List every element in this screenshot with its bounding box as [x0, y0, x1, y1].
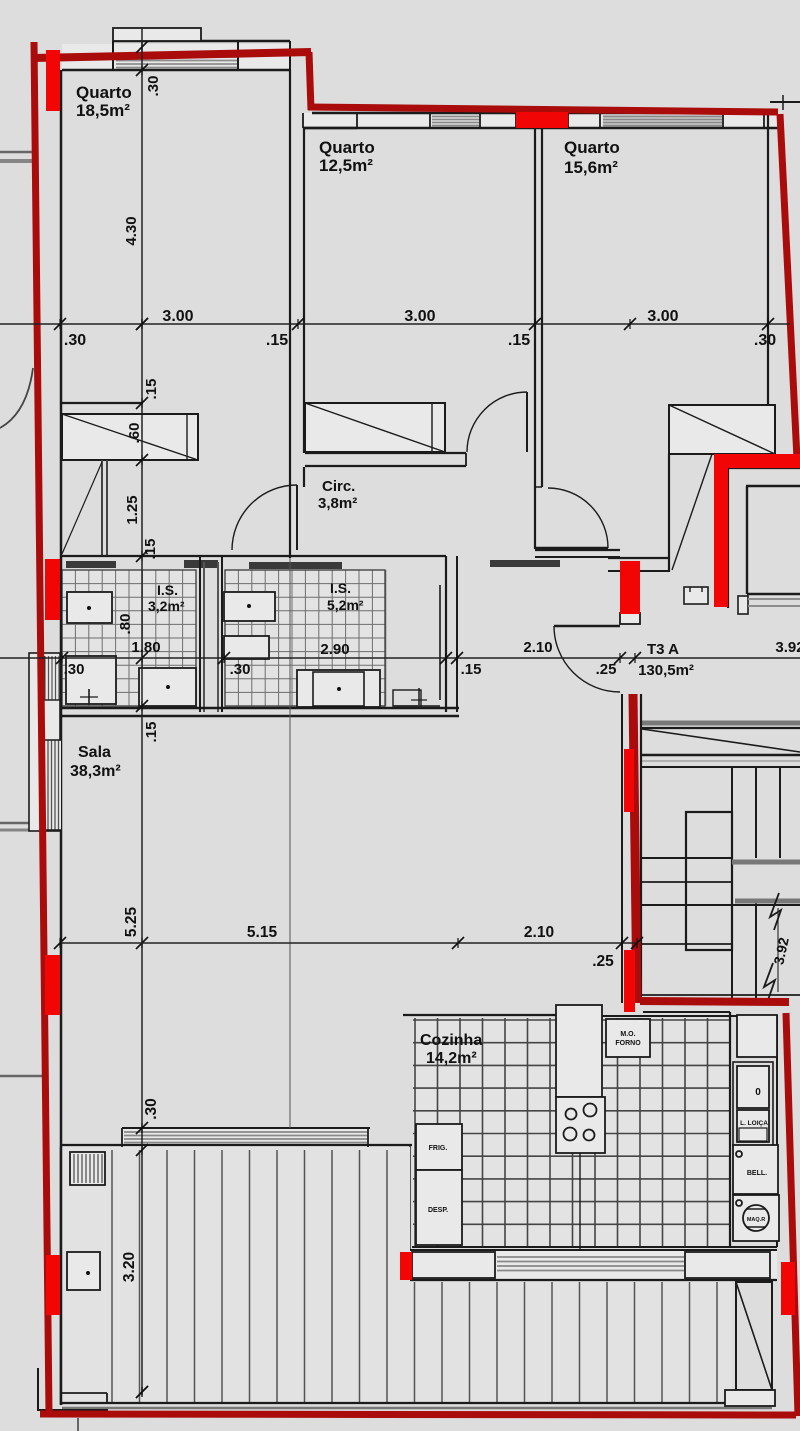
svg-text:.15: .15 — [266, 332, 288, 349]
svg-text:I.S.: I.S. — [330, 580, 351, 596]
svg-text:Quarto: Quarto — [319, 138, 375, 157]
svg-text:Cozinha: Cozinha — [420, 1032, 482, 1049]
svg-text:3.00: 3.00 — [162, 308, 193, 325]
svg-text:Sala: Sala — [78, 744, 111, 761]
svg-text:.30: .30 — [64, 661, 85, 678]
svg-text:DESP.: DESP. — [428, 1207, 448, 1214]
svg-text:T3 A: T3 A — [647, 641, 679, 658]
svg-text:38,3m²: 38,3m² — [70, 763, 121, 780]
svg-text:Circ.: Circ. — [322, 478, 355, 495]
svg-text:I.S.: I.S. — [157, 582, 178, 598]
svg-text:.80: .80 — [117, 614, 134, 635]
svg-text:3.00: 3.00 — [647, 308, 678, 325]
svg-text:3.20: 3.20 — [121, 1252, 138, 1282]
svg-text:12,5m²: 12,5m² — [319, 156, 373, 175]
svg-text:5.25: 5.25 — [123, 907, 140, 938]
svg-text:15,6m²: 15,6m² — [564, 158, 618, 177]
svg-text:4.30: 4.30 — [123, 216, 140, 245]
svg-text:FRIG.: FRIG. — [429, 1145, 448, 1152]
svg-text:1.80: 1.80 — [131, 639, 160, 656]
svg-text:.30: .30 — [145, 76, 162, 97]
svg-text:.15: .15 — [461, 661, 482, 678]
svg-text:.30: .30 — [64, 332, 86, 349]
svg-text:18,5m²: 18,5m² — [76, 101, 130, 120]
svg-text:.60: .60 — [126, 423, 143, 444]
svg-text:130,5m²: 130,5m² — [638, 662, 694, 679]
svg-text:3,2m²: 3,2m² — [148, 598, 185, 614]
svg-text:5,2m²: 5,2m² — [327, 597, 364, 613]
svg-text:5.15: 5.15 — [247, 924, 278, 941]
svg-text:2.90: 2.90 — [320, 641, 349, 658]
svg-text:M.O.: M.O. — [620, 1031, 635, 1038]
svg-text:Quarto: Quarto — [564, 138, 620, 157]
svg-text:L. LOIÇA: L. LOIÇA — [740, 1120, 768, 1127]
svg-text:.15: .15 — [508, 332, 530, 349]
svg-text:.15: .15 — [143, 722, 160, 743]
svg-text:3,8m²: 3,8m² — [318, 495, 357, 512]
svg-text:0: 0 — [755, 1087, 761, 1098]
svg-text:Quarto: Quarto — [76, 83, 132, 102]
svg-text:.30: .30 — [230, 661, 251, 678]
svg-text:2.10: 2.10 — [524, 924, 554, 941]
svg-text:.25: .25 — [596, 661, 617, 678]
svg-text:.30: .30 — [143, 1098, 160, 1120]
svg-text:2.10: 2.10 — [523, 639, 552, 656]
svg-text:.30: .30 — [754, 332, 776, 349]
svg-text:3.92: 3.92 — [775, 639, 800, 656]
svg-text:.25: .25 — [592, 953, 614, 970]
svg-text:MAQ.R: MAQ.R — [747, 1217, 765, 1223]
svg-text:.15: .15 — [142, 539, 159, 560]
svg-text:14,2m²: 14,2m² — [426, 1050, 477, 1067]
svg-text:FORNO: FORNO — [615, 1040, 641, 1047]
svg-text:.15: .15 — [143, 379, 160, 400]
svg-text:BELL.: BELL. — [747, 1170, 767, 1177]
svg-text:1.25: 1.25 — [124, 495, 141, 524]
svg-text:3.00: 3.00 — [404, 308, 435, 325]
